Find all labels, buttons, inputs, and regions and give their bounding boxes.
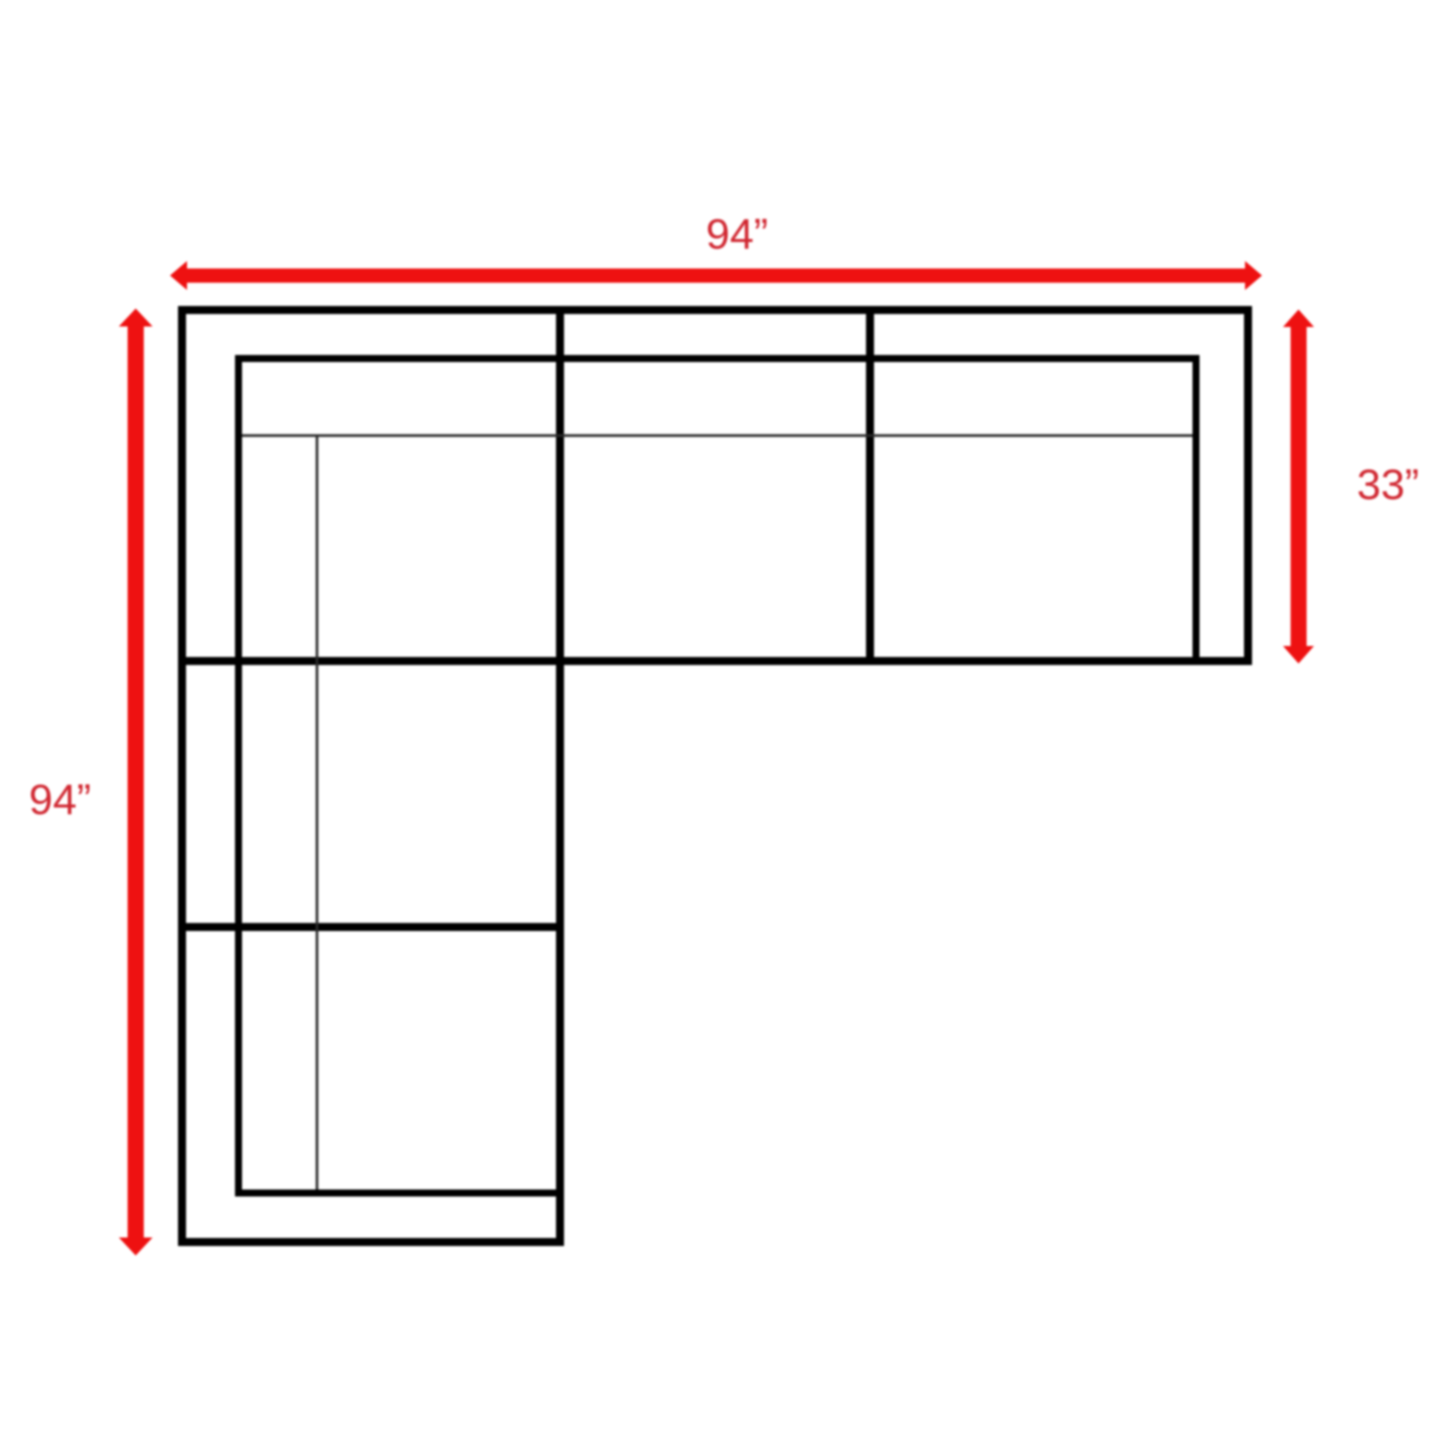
svg-text:33”: 33” (1357, 461, 1419, 509)
svg-text:94”: 94” (706, 211, 768, 259)
svg-text:94”: 94” (29, 776, 91, 824)
